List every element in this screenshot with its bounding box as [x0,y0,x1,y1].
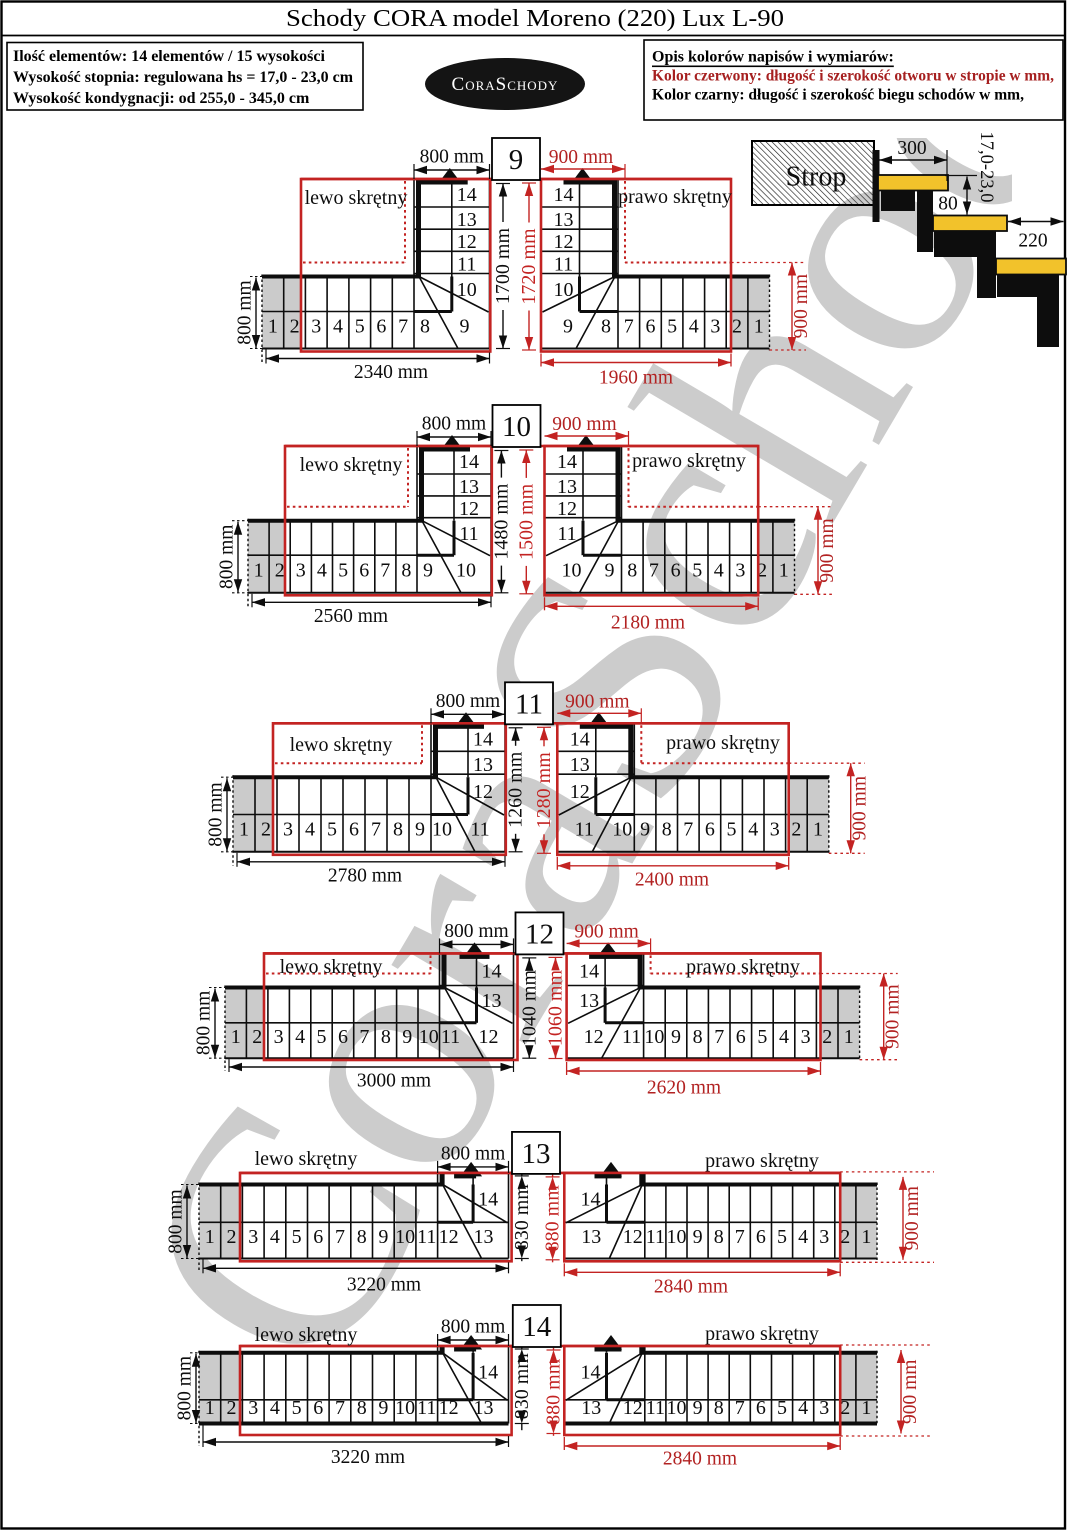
svg-text:13: 13 [457,209,477,231]
svg-text:2: 2 [227,1226,237,1248]
svg-text:3: 3 [735,560,745,582]
svg-text:13: 13 [554,209,574,231]
svg-text:9: 9 [640,819,650,841]
svg-text:3: 3 [819,1397,829,1419]
svg-text:3220 mm: 3220 mm [331,1447,405,1468]
svg-text:4: 4 [714,560,724,582]
svg-text:5: 5 [692,560,702,582]
svg-text:3: 3 [296,560,306,582]
svg-text:11: 11 [622,1026,641,1048]
svg-text:10: 10 [667,1226,687,1248]
svg-text:3: 3 [819,1226,829,1248]
svg-text:880 mm: 880 mm [542,1185,564,1252]
svg-text:1700 mm: 1700 mm [492,228,514,305]
svg-text:prawo skrętny: prawo skrętny [705,1150,819,1172]
svg-text:8: 8 [693,1026,703,1048]
svg-text:2: 2 [252,1026,262,1048]
svg-text:9: 9 [402,1026,412,1048]
svg-text:8: 8 [714,1226,724,1248]
svg-text:lewo skrętny: lewo skrętny [255,1148,358,1170]
svg-text:Schody CORA model Moreno (220): Schody CORA model Moreno (220) Lux L-90 [286,6,784,32]
svg-text:7: 7 [335,1226,345,1248]
svg-text:3: 3 [801,1026,811,1048]
svg-text:2560 mm: 2560 mm [314,606,388,627]
svg-text:9: 9 [693,1226,703,1248]
svg-text:12: 12 [459,498,479,520]
svg-text:2: 2 [822,1026,832,1048]
svg-text:10: 10 [612,819,632,841]
svg-text:10: 10 [457,279,477,301]
svg-text:lewo skrętny: lewo skrętny [280,956,383,978]
svg-text:12: 12 [570,781,590,803]
svg-text:5: 5 [292,1226,302,1248]
svg-text:800 mm: 800 mm [420,147,484,168]
svg-text:Wysokość kondygnacji: od 255,0: Wysokość kondygnacji: od 255,0 - 345,0 c… [13,90,310,107]
svg-text:6: 6 [756,1397,766,1419]
svg-text:7: 7 [649,560,659,582]
svg-text:17,0-23,0: 17,0-23,0 [976,132,996,203]
svg-text:3: 3 [283,819,293,841]
svg-text:12: 12 [554,231,574,253]
svg-text:11: 11 [417,1397,436,1419]
svg-text:7: 7 [371,819,381,841]
svg-text:3: 3 [770,819,780,841]
svg-text:800 mm: 800 mm [422,414,486,435]
svg-text:5: 5 [292,1397,302,1419]
svg-text:Opis kolorów napisów i wymiaró: Opis kolorów napisów i wymiarów: [652,48,894,65]
svg-text:6: 6 [338,1026,348,1048]
svg-text:prawo skrętny: prawo skrętny [686,956,800,978]
svg-text:1: 1 [813,819,823,841]
svg-text:14: 14 [478,1188,498,1210]
svg-text:7: 7 [624,316,634,338]
svg-text:prawo skrętny: prawo skrętny [705,1323,819,1345]
svg-text:900 mm: 900 mm [574,921,638,942]
svg-text:lewo skrętny: lewo skrętny [305,187,408,209]
svg-text:13: 13 [482,990,502,1012]
svg-text:3000 mm: 3000 mm [357,1071,431,1092]
svg-text:2840 mm: 2840 mm [663,1449,737,1470]
svg-text:9: 9 [460,316,470,338]
svg-text:5: 5 [777,1397,787,1419]
svg-text:10: 10 [419,1026,439,1048]
svg-text:12: 12 [439,1226,459,1248]
svg-text:10: 10 [432,819,452,841]
svg-text:11: 11 [646,1226,665,1248]
svg-text:9: 9 [563,316,573,338]
svg-text:4: 4 [270,1397,280,1419]
svg-text:6: 6 [736,1026,746,1048]
svg-text:4: 4 [798,1397,808,1419]
svg-text:3: 3 [710,316,720,338]
svg-text:12: 12 [623,1226,643,1248]
svg-text:10: 10 [502,411,531,443]
svg-text:6: 6 [705,819,715,841]
svg-text:8: 8 [714,1397,724,1419]
svg-text:14: 14 [581,1361,601,1383]
svg-text:13: 13 [579,990,599,1012]
svg-text:9: 9 [378,1397,388,1419]
svg-text:13: 13 [581,1226,601,1248]
svg-text:6: 6 [313,1226,323,1248]
svg-text:1: 1 [231,1026,241,1048]
svg-text:5: 5 [327,819,337,841]
svg-text:4: 4 [305,819,315,841]
svg-text:9: 9 [509,144,524,176]
svg-text:6: 6 [313,1397,323,1419]
svg-text:1280 mm: 1280 mm [533,752,555,829]
svg-text:9: 9 [693,1397,703,1419]
svg-text:14: 14 [459,451,479,473]
svg-text:2180 mm: 2180 mm [611,613,685,634]
svg-text:800 mm: 800 mm [441,1143,505,1164]
svg-text:800 mm: 800 mm [441,1317,505,1338]
svg-text:7: 7 [398,316,408,338]
svg-text:1: 1 [254,560,264,582]
svg-text:8: 8 [401,560,411,582]
svg-text:10: 10 [562,560,582,582]
svg-text:4: 4 [748,819,758,841]
svg-text:11: 11 [470,819,489,841]
svg-text:CoraSchody: CoraSchody [452,74,559,95]
svg-text:2: 2 [275,560,285,582]
svg-text:830 mm: 830 mm [511,1184,533,1251]
svg-text:4: 4 [317,560,327,582]
svg-text:Kolor czarny: długość i szerok: Kolor czarny: długość i szerokość biegu … [652,87,1024,104]
svg-text:6: 6 [349,819,359,841]
svg-text:Kolor czerwony: długość i szer: Kolor czerwony: długość i szerokość otwo… [652,68,1054,85]
svg-text:1720 mm: 1720 mm [518,228,540,305]
svg-text:1: 1 [779,560,789,582]
svg-text:3: 3 [248,1226,258,1248]
svg-text:8: 8 [627,560,637,582]
svg-text:2: 2 [791,819,801,841]
svg-text:4: 4 [689,316,699,338]
svg-text:12: 12 [623,1397,643,1419]
svg-text:2400 mm: 2400 mm [635,870,709,891]
svg-text:800 mm: 800 mm [166,1189,187,1253]
svg-text:Strop: Strop [786,162,847,193]
svg-text:12: 12 [439,1397,459,1419]
svg-text:lewo skrętny: lewo skrętny [290,734,393,756]
svg-text:900 mm: 900 mm [883,984,904,1048]
svg-text:13: 13 [557,476,577,498]
svg-text:1060 mm: 1060 mm [545,970,567,1047]
svg-text:11: 11 [575,819,594,841]
svg-text:80: 80 [938,194,958,215]
svg-text:13: 13 [522,1138,551,1170]
svg-text:900 mm: 900 mm [791,274,812,338]
svg-text:13: 13 [474,1397,494,1419]
svg-text:10: 10 [554,279,574,301]
svg-text:3: 3 [248,1397,258,1419]
svg-text:14: 14 [457,184,477,206]
svg-text:9: 9 [671,1026,681,1048]
svg-text:5: 5 [338,560,348,582]
svg-text:2620 mm: 2620 mm [647,1078,721,1099]
svg-text:12: 12 [557,498,577,520]
svg-text:900 mm: 900 mm [900,1360,921,1424]
svg-text:300: 300 [897,138,926,159]
svg-text:830 mm: 830 mm [511,1353,533,1420]
svg-text:7: 7 [359,1026,369,1048]
svg-text:1: 1 [844,1026,854,1048]
svg-text:2: 2 [290,316,300,338]
svg-text:12: 12 [479,1026,499,1048]
svg-text:6: 6 [671,560,681,582]
svg-text:800 mm: 800 mm [175,1356,196,1420]
svg-text:7: 7 [335,1397,345,1419]
svg-text:1: 1 [861,1226,871,1248]
svg-text:8: 8 [357,1226,367,1248]
svg-text:7: 7 [683,819,693,841]
svg-text:8: 8 [662,819,672,841]
svg-text:7: 7 [380,560,390,582]
svg-text:11: 11 [459,523,478,545]
svg-text:6: 6 [646,316,656,338]
svg-text:14: 14 [522,1311,552,1343]
svg-text:2: 2 [840,1226,850,1248]
svg-text:3: 3 [311,316,321,338]
svg-text:800 mm: 800 mm [444,921,508,942]
svg-text:6: 6 [376,316,386,338]
svg-text:11: 11 [557,523,576,545]
svg-text:3220 mm: 3220 mm [347,1275,421,1296]
svg-text:14: 14 [579,961,599,983]
svg-text:800 mm: 800 mm [436,691,500,712]
svg-text:13: 13 [473,754,493,776]
svg-text:8: 8 [357,1397,367,1419]
svg-text:5: 5 [777,1226,787,1248]
svg-text:11: 11 [554,253,573,275]
svg-text:14: 14 [557,451,577,473]
svg-text:900 mm: 900 mm [850,776,871,840]
svg-text:prawo skrętny: prawo skrętny [666,732,780,754]
svg-text:800 mm: 800 mm [206,782,227,846]
svg-text:2780 mm: 2780 mm [328,866,402,887]
svg-text:14: 14 [554,184,574,206]
svg-text:9: 9 [415,819,425,841]
svg-text:13: 13 [570,754,590,776]
svg-text:5: 5 [757,1026,767,1048]
svg-text:7: 7 [735,1397,745,1419]
svg-text:12: 12 [457,231,477,253]
svg-text:900 mm: 900 mm [902,1186,923,1250]
svg-text:Wysokość stopnia: regulowana: Wysokość stopnia: regulowana hs = 17,0 -… [13,69,354,86]
svg-text:4: 4 [333,316,343,338]
svg-text:13: 13 [581,1397,601,1419]
svg-text:5: 5 [667,316,677,338]
svg-text:1: 1 [205,1397,215,1419]
svg-text:12: 12 [584,1026,604,1048]
svg-text:11: 11 [457,253,476,275]
svg-text:11: 11 [441,1026,460,1048]
svg-text:2340 mm: 2340 mm [354,362,428,383]
svg-text:2: 2 [227,1397,237,1419]
svg-text:1500 mm: 1500 mm [515,483,537,560]
svg-text:900 mm: 900 mm [549,147,613,168]
svg-text:1040 mm: 1040 mm [518,970,540,1047]
svg-text:2: 2 [261,819,271,841]
svg-text:11: 11 [646,1397,665,1419]
svg-text:1960 mm: 1960 mm [599,368,673,389]
svg-text:6: 6 [756,1226,766,1248]
svg-text:5: 5 [727,819,737,841]
svg-text:900 mm: 900 mm [565,691,629,712]
svg-text:13: 13 [474,1226,494,1248]
svg-text:prawo skrętny: prawo skrętny [632,450,746,472]
svg-text:10: 10 [456,560,476,582]
svg-text:8: 8 [393,819,403,841]
svg-text:lewo skrętny: lewo skrętny [255,1324,358,1346]
svg-text:prawo skrętny: prawo skrętny [618,186,732,208]
svg-text:13: 13 [459,476,479,498]
svg-text:1: 1 [205,1226,215,1248]
svg-text:14: 14 [581,1188,601,1210]
svg-text:5: 5 [317,1026,327,1048]
svg-text:6: 6 [359,560,369,582]
svg-text:9: 9 [605,560,615,582]
svg-text:Ilość elementów: 14 elementów: Ilość elementów: 14 elementów / 15 wysok… [13,48,326,65]
svg-text:10: 10 [644,1026,664,1048]
svg-text:9: 9 [423,560,433,582]
svg-text:8: 8 [420,316,430,338]
svg-text:lewo skrętny: lewo skrętny [300,454,403,476]
svg-text:7: 7 [714,1026,724,1048]
svg-text:800 mm: 800 mm [235,280,256,344]
svg-text:14: 14 [473,728,493,750]
svg-text:4: 4 [295,1026,305,1048]
svg-text:800 mm: 800 mm [194,991,215,1055]
svg-text:14: 14 [482,961,502,983]
svg-text:1260 mm: 1260 mm [505,751,527,828]
svg-text:10: 10 [667,1397,687,1419]
svg-text:4: 4 [779,1026,789,1048]
svg-text:1480 mm: 1480 mm [490,483,512,560]
svg-text:11: 11 [417,1226,436,1248]
svg-text:14: 14 [570,728,590,750]
svg-text:900 mm: 900 mm [817,518,838,582]
svg-text:4: 4 [270,1226,280,1248]
svg-text:4: 4 [798,1226,808,1248]
svg-text:5: 5 [355,316,365,338]
svg-text:12: 12 [473,781,493,803]
svg-text:220: 220 [1018,231,1047,252]
svg-text:10: 10 [395,1397,415,1419]
svg-text:7: 7 [735,1226,745,1248]
svg-text:14: 14 [478,1361,498,1383]
svg-text:2840 mm: 2840 mm [654,1277,728,1298]
svg-text:1: 1 [861,1397,871,1419]
svg-text:1: 1 [754,316,764,338]
svg-text:8: 8 [601,316,611,338]
svg-text:900 mm: 900 mm [552,414,616,435]
svg-text:11: 11 [515,688,543,720]
svg-text:10: 10 [395,1226,415,1248]
svg-text:800 mm: 800 mm [217,525,238,589]
svg-text:3: 3 [274,1026,284,1048]
svg-text:1: 1 [268,316,278,338]
svg-text:9: 9 [378,1226,388,1248]
svg-text:880 mm: 880 mm [543,1358,565,1425]
svg-text:1: 1 [239,819,249,841]
svg-text:8: 8 [381,1026,391,1048]
svg-text:2: 2 [732,316,742,338]
svg-text:12: 12 [525,918,554,950]
svg-text:2: 2 [840,1397,850,1419]
